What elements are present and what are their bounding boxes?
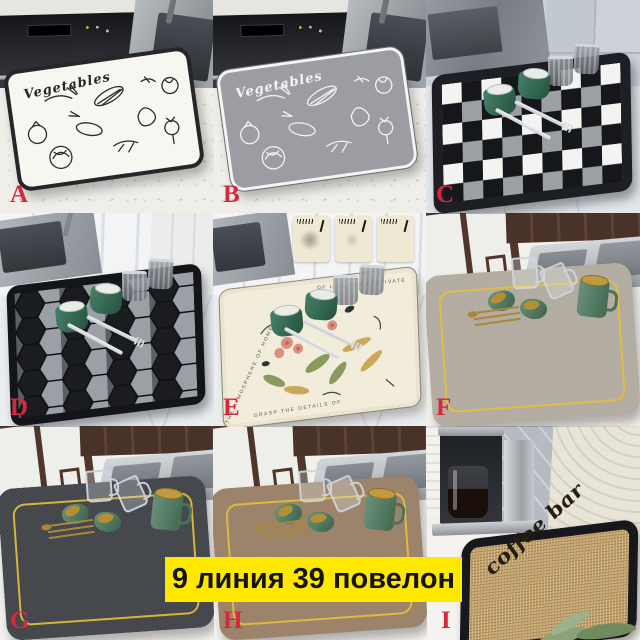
green-mug (150, 491, 184, 532)
leaf (575, 620, 636, 640)
drying-mat-gray-vegetables: Vegetables (215, 46, 418, 193)
glass-highlight (453, 470, 457, 510)
photo-cell-i: coffee bar I (426, 426, 640, 640)
ink-scribble (297, 219, 313, 224)
drinking-glass (548, 56, 573, 86)
photo-cell-d: D (0, 213, 214, 427)
absorption-step-3 (377, 216, 414, 262)
label-e: E (223, 394, 240, 422)
label-d: D (10, 394, 28, 422)
promo-banner-text: 9 линия 39 повелон (172, 563, 455, 596)
coffee-carafe (448, 466, 488, 518)
drinking-glass (358, 264, 385, 295)
coffee-machine-lid (438, 426, 504, 436)
green-mug (576, 278, 610, 319)
label-f: F (436, 394, 451, 422)
photo-cell-e: OF LIFE AND CULTIVATE THE ATMOSPHERE OF … (213, 213, 427, 427)
vegetable-doodles (219, 49, 415, 189)
ink-drip (404, 220, 409, 232)
drying-mat-white-vegetables: Vegetables (2, 46, 205, 193)
label-h: H (223, 607, 242, 635)
photo-cell-b: Vegetables B (213, 0, 427, 214)
photo-cell-h: H (213, 426, 427, 640)
photo-cell-c: C (426, 0, 640, 214)
label-g: G (10, 607, 29, 635)
sink-basin (0, 221, 67, 273)
green-cup (517, 71, 551, 100)
oven-display (240, 24, 284, 37)
photo-cell-f: F (426, 213, 640, 427)
absorption-step-1 (293, 216, 330, 262)
glass-mug (298, 469, 326, 503)
green-cup (304, 292, 338, 321)
glass-mug (511, 256, 539, 290)
absorption-demo-insets (293, 216, 414, 262)
drinking-glass (147, 258, 174, 289)
label-i: I (441, 607, 451, 635)
vegetable-doodles (7, 50, 201, 188)
ink-drip (362, 220, 367, 232)
promo-banner: 9 линия 39 повелон (165, 557, 462, 602)
chrome-column (504, 440, 534, 524)
oven-controls (296, 23, 326, 36)
label-b: B (223, 181, 240, 209)
water-stain (298, 230, 322, 250)
oven-display (27, 24, 71, 37)
photo-cell-a: Vegetables A (0, 0, 214, 214)
glass-mug (85, 469, 113, 503)
sink-basin (427, 6, 502, 60)
product-collage: Vegetables A (0, 0, 640, 640)
drinking-glass (573, 43, 600, 74)
plant-leaves (528, 600, 640, 640)
ink-drip (320, 220, 325, 232)
drinking-glass (122, 271, 147, 301)
ink-scribble (381, 219, 397, 224)
label-a: A (10, 181, 28, 209)
ink-scribble (339, 219, 355, 224)
absorption-step-2 (335, 216, 372, 262)
green-mug (363, 491, 397, 532)
green-cup (89, 286, 123, 315)
oven-controls (83, 23, 113, 36)
water-stain (344, 233, 361, 247)
label-c: C (436, 181, 454, 209)
photo-cell-g: G (0, 426, 214, 640)
sink-basin (213, 222, 266, 273)
